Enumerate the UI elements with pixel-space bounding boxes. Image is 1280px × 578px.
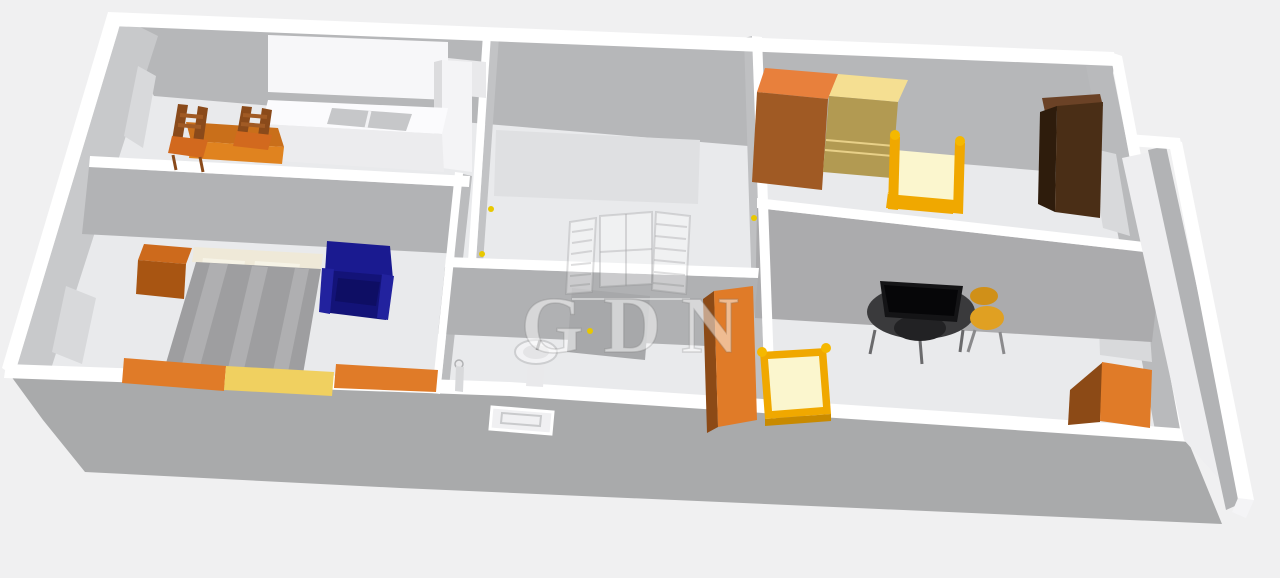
wardrobe-brown-side bbox=[1038, 106, 1057, 212]
chair-back bbox=[970, 287, 998, 305]
chair-slat bbox=[180, 115, 203, 117]
nightstand-front bbox=[136, 260, 186, 299]
bed-knob bbox=[890, 130, 900, 140]
chair-slat bbox=[241, 124, 265, 126]
bed-knob bbox=[955, 136, 965, 146]
watermark-text: GDN bbox=[521, 282, 759, 370]
crib-knob bbox=[821, 343, 831, 353]
wall-fixture-stem bbox=[455, 366, 464, 392]
tall-cabinet bbox=[442, 60, 472, 172]
hallway-wall-panel bbox=[494, 130, 700, 204]
armchair-cushion bbox=[335, 278, 380, 306]
kids-cabinet-front bbox=[1100, 362, 1152, 428]
wall-cabinet bbox=[268, 35, 448, 100]
chair-slat bbox=[243, 115, 267, 117]
door-handle-marker bbox=[479, 251, 485, 257]
wardrobe-brown-front bbox=[1055, 102, 1103, 218]
door-handle-marker bbox=[488, 206, 494, 212]
chair-seat bbox=[970, 306, 1004, 330]
front-wall-vent bbox=[490, 407, 553, 434]
bed-post bbox=[953, 142, 965, 214]
floorplan-3d-viewport[interactable]: GDN bbox=[0, 0, 1280, 578]
crib-mattress bbox=[768, 356, 823, 411]
wardrobe-orange-front bbox=[752, 92, 828, 190]
desk-leg bbox=[920, 340, 922, 364]
crib bbox=[757, 343, 831, 426]
door-handle-marker bbox=[751, 215, 757, 221]
wardrobe-yellow-front bbox=[823, 96, 898, 178]
chair-slat bbox=[178, 125, 201, 127]
bed-post bbox=[888, 136, 900, 210]
monitor-panel bbox=[884, 285, 958, 316]
